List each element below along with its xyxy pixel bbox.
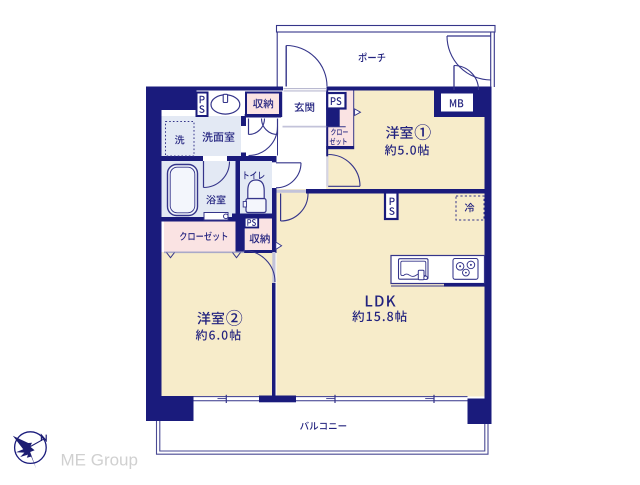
svg-text:ME Group: ME Group [61,451,138,470]
